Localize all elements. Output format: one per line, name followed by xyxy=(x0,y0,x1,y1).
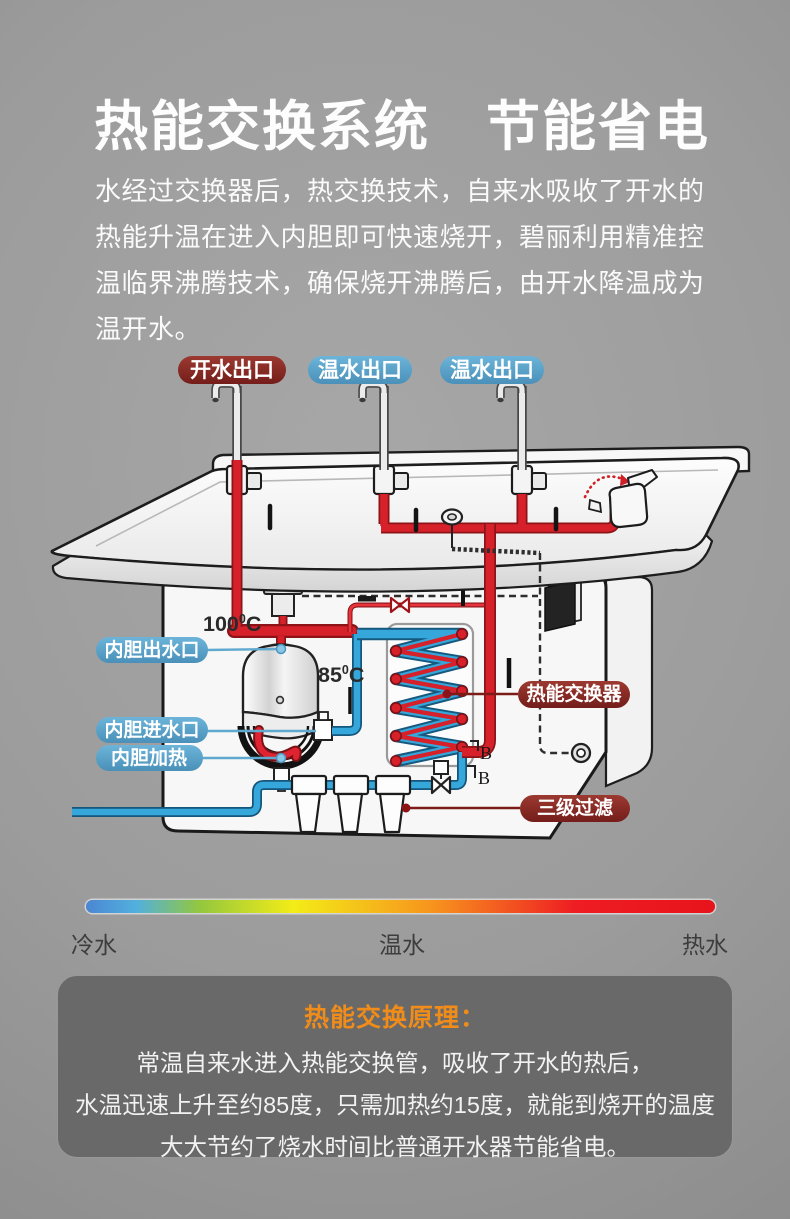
scale-label-warm: 温水 xyxy=(379,926,425,960)
temperature-gradient-bar xyxy=(86,900,715,913)
temp-boil-degree: 0 xyxy=(239,612,246,626)
temperature-scale-labels: 冷水 温水 热水 xyxy=(0,926,790,956)
heater-terminal xyxy=(274,768,289,782)
temp-warm-unit: C xyxy=(349,663,365,687)
intro-line: 热能升温在进入内胆即可快速烧开，碧丽利用精准控 xyxy=(95,214,715,260)
tank-gauge-hole xyxy=(277,697,284,704)
drain-grommet-hole xyxy=(577,749,585,757)
system-diagram: 开水出口 温水出口 温水出口 内胆出水口 内胆进水口 内胆加热 热能交换器 三级… xyxy=(0,340,790,898)
infographic-page: 热能交换系统 节能省电 水经过交换器后，热交换技术，自来水吸收了开水的 热能升温… xyxy=(0,0,790,1219)
principle-title: 热能交换原理： xyxy=(58,998,732,1034)
principle-line: 水温迅速上升至约85度，只需加热约15度，就能到烧开的温度 xyxy=(58,1084,732,1126)
leader-dot-exchanger xyxy=(443,690,452,699)
temp-boil-num: 100 xyxy=(203,612,239,636)
scale-label-cold: 冷水 xyxy=(71,926,117,960)
pill-heat-exchanger-label: 热能交换器 xyxy=(526,682,622,705)
outlet-pill-warm-1-label: 温水出口 xyxy=(318,359,402,382)
temp-warm-degree: 0 xyxy=(342,663,349,677)
pill-tank-outlet-label: 内胆出水口 xyxy=(104,638,199,661)
port-letter-b1: B xyxy=(480,743,492,763)
top-fitting-body xyxy=(272,594,294,616)
principle-line: 大大节约了烧水时间比普通开水器节能省电。 xyxy=(58,1126,732,1168)
tank-inlet-fitting xyxy=(314,720,332,740)
intro-line: 水经过交换器后，热交换技术，自来水吸收了开水的 xyxy=(95,168,715,214)
principle-line: 常温自来水进入热能交换管，吸收了开水的热后， xyxy=(58,1042,732,1084)
temp-boil-unit: C xyxy=(246,612,262,636)
intro-line: 温临界沸腾技术，确保烧开沸腾后，由开水降温成为 xyxy=(95,260,715,306)
tank-inlet-fitting-top xyxy=(319,712,328,720)
pill-tank-inlet-label: 内胆进水口 xyxy=(104,718,199,741)
leader-dot-outlet xyxy=(277,645,286,654)
intro-paragraph: 水经过交换器后，热交换技术，自来水吸收了开水的 热能升温在进入内胆即可快速烧开，… xyxy=(95,168,715,352)
outlet-pill-warm-2-label: 温水出口 xyxy=(450,359,534,382)
temp-warm: 850C xyxy=(318,663,364,687)
outlet-pill-hot-label: 开水出口 xyxy=(190,359,274,382)
pill-filter-label: 三级过滤 xyxy=(537,796,613,819)
scale-label-hot: 热水 xyxy=(682,926,728,960)
principle-text: 常温自来水进入热能交换管，吸收了开水的热后， 水温迅速上升至约85度，只需加热约… xyxy=(58,1042,732,1168)
temp-boil: 1000C xyxy=(203,612,261,636)
leader-dot-filter xyxy=(402,804,411,813)
page-title: 热能交换系统 节能省电 xyxy=(94,82,734,161)
outlet-labels: 开水出口 温水出口 温水出口 xyxy=(178,356,544,384)
inner-tank xyxy=(243,645,318,718)
principle-box: 热能交换原理： 常温自来水进入热能交换管，吸收了开水的热后， 水温迅速上升至约8… xyxy=(57,975,733,1158)
filter-cartridges xyxy=(292,776,410,832)
leader-dot-heater xyxy=(277,754,286,763)
port-letter-b2: B xyxy=(478,768,490,788)
counter-drain-hole xyxy=(448,514,456,520)
pill-tank-heater-label: 内胆加热 xyxy=(111,746,187,769)
temp-warm-num: 85 xyxy=(318,663,342,687)
minus-mark xyxy=(358,596,376,602)
